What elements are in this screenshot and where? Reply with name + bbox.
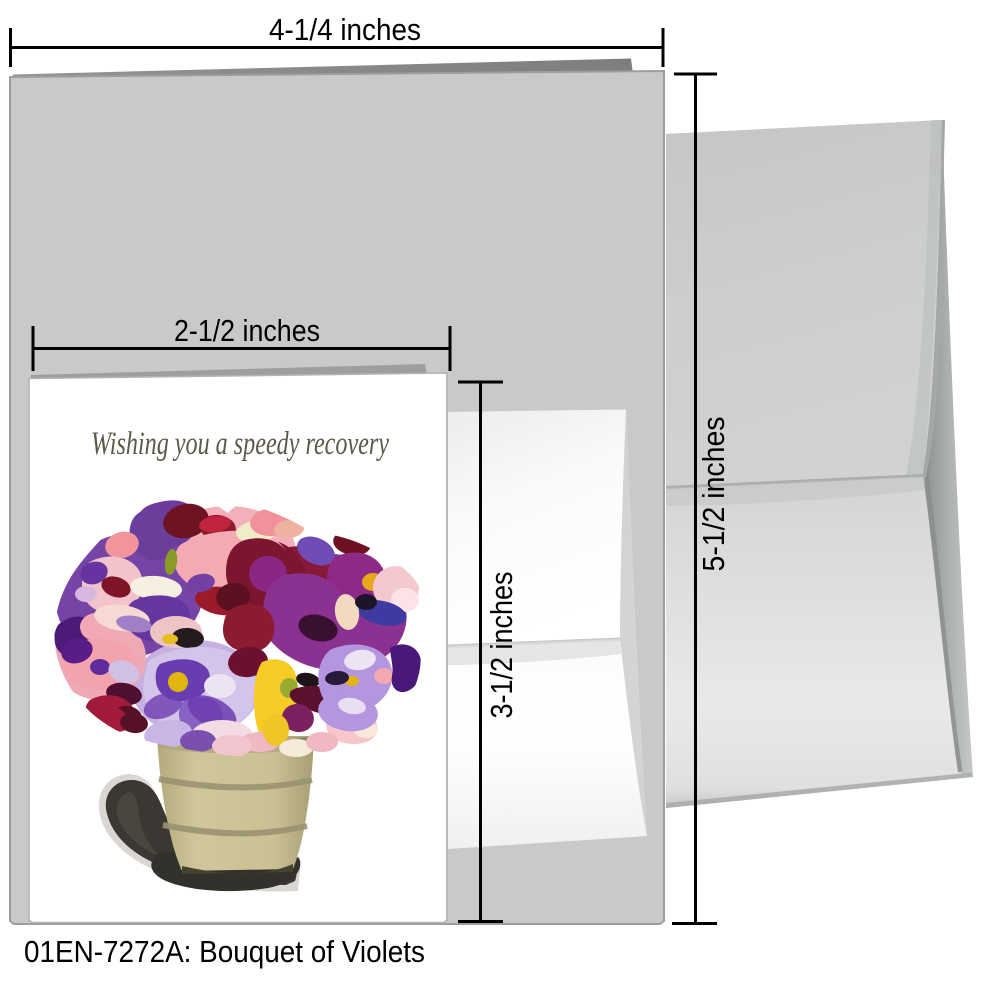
svg-text:01EN-7272A: Bouquet of Violets: 01EN-7272A: Bouquet of Violets — [24, 934, 425, 969]
svg-text:4-1/4 inches: 4-1/4 inches — [269, 12, 421, 47]
svg-text:3-1/2 inches: 3-1/2 inches — [484, 572, 519, 719]
svg-text:5-1/2 inches: 5-1/2 inches — [696, 417, 731, 572]
svg-text:Wishing you a speedy recovery: Wishing you a speedy recovery — [91, 426, 389, 462]
svg-text:2-1/2 inches: 2-1/2 inches — [174, 313, 320, 348]
